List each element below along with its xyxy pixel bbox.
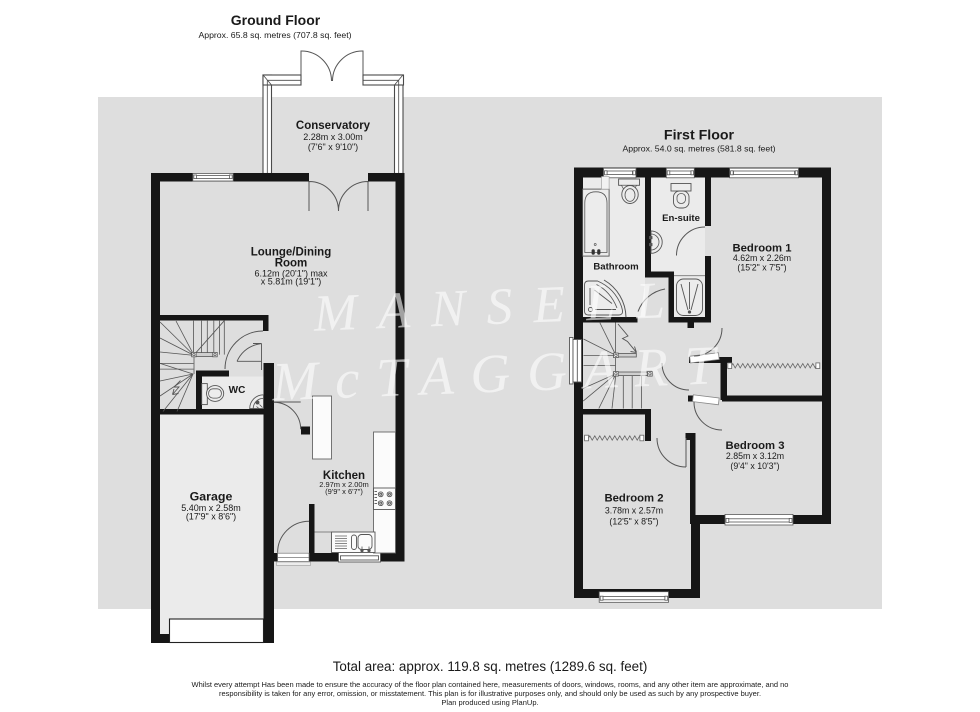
svg-text:Approx. 54.0 sq. metres (581.8: Approx. 54.0 sq. metres (581.8 sq. feet): [622, 144, 775, 154]
svg-text:Conservatory: Conservatory: [296, 120, 371, 132]
svg-text:(7'6" x 9'10"): (7'6" x 9'10"): [308, 142, 358, 152]
svg-text:En-suite: En-suite: [662, 213, 700, 224]
svg-text:Bathroom: Bathroom: [593, 261, 638, 272]
svg-text:2.28m x 3.00m: 2.28m x 3.00m: [303, 132, 363, 142]
svg-text:Approx. 65.8 sq. metres (707.8: Approx. 65.8 sq. metres (707.8 sq. feet): [198, 30, 351, 40]
svg-text:Bedroom 3: Bedroom 3: [725, 440, 784, 452]
svg-text:3.78m x 2.57m: 3.78m x 2.57m: [605, 505, 663, 515]
svg-text:(17'9" x 8'6"): (17'9" x 8'6"): [186, 511, 236, 521]
svg-text:WC: WC: [229, 385, 246, 396]
svg-text:Garage: Garage: [190, 489, 233, 503]
svg-text:Lounge/Dining: Lounge/Dining: [251, 246, 331, 258]
svg-text:First Floor: First Floor: [664, 128, 735, 144]
svg-text:Bedroom 2: Bedroom 2: [604, 493, 663, 505]
svg-text:2.85m x 3.12m: 2.85m x 3.12m: [726, 451, 784, 461]
svg-text:responsibility is taken for an: responsibility is taken for any error, o…: [219, 689, 761, 698]
svg-text:Ground Floor: Ground Floor: [231, 12, 321, 28]
svg-text:Whilst every attempt Has been: Whilst every attempt Has been made to en…: [192, 680, 789, 689]
svg-text:(12'5" x 8'5"): (12'5" x 8'5"): [609, 516, 658, 526]
svg-text:(9'4" x 10'3"): (9'4" x 10'3"): [730, 461, 779, 471]
svg-text:Total area: approx. 119.8 sq.: Total area: approx. 119.8 sq. metres (12…: [333, 659, 648, 674]
svg-text:(15'2" x 7'5"): (15'2" x 7'5"): [737, 263, 786, 273]
svg-text:Plan produced using PlanUp.: Plan produced using PlanUp.: [441, 698, 538, 707]
svg-text:(9'9" x 6'7"): (9'9" x 6'7"): [325, 487, 363, 496]
